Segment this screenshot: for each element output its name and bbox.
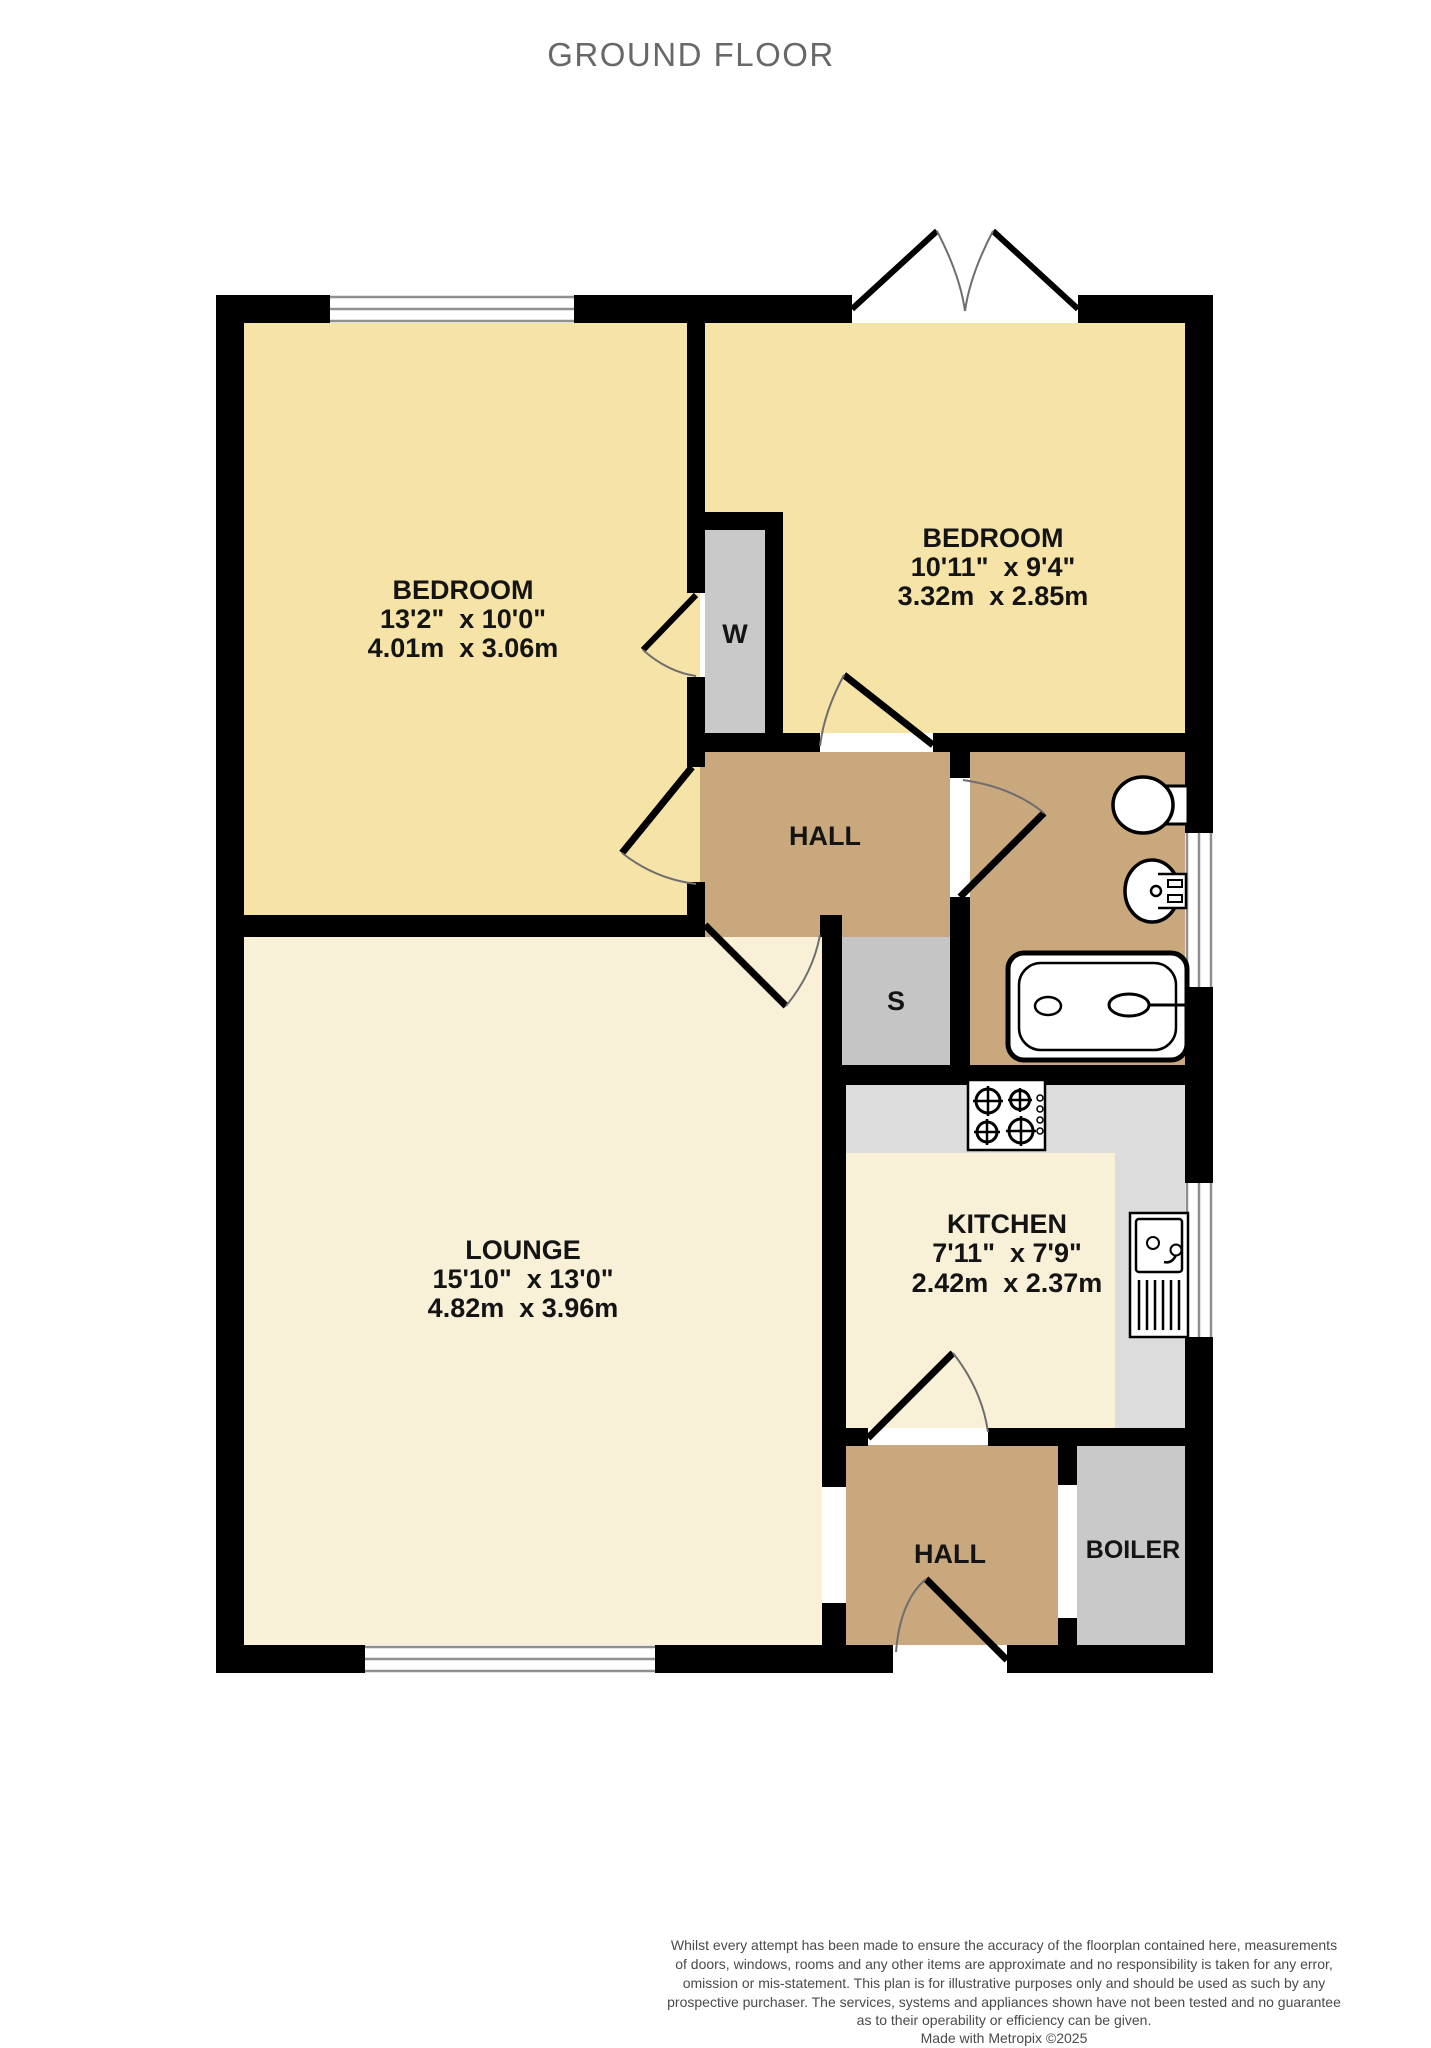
kitchen-name: KITCHEN [947,1209,1067,1239]
french-doors [852,231,1078,311]
page-title: GROUND FLOOR [547,36,835,73]
wall-segment [846,1428,868,1446]
wall-segment [1058,1428,1077,1485]
metropix-credit: Made with Metropix ©2025 [921,2030,1088,2046]
wall-segment [822,1603,846,1645]
floorplan-canvas: GROUND FLOOR BEDROOM 13'2" x 10'0" 4.01m… [0,0,1431,2048]
disclaimer: Whilst every attempt has been made to en… [667,1937,1341,2046]
bath-fixture [1008,953,1187,1060]
wall-segment [933,733,1185,752]
hall-lower-label: HALL [914,1539,986,1569]
store-label: S [887,986,905,1016]
wall-segment [687,882,705,915]
wall-segment [822,915,842,1085]
wall-segment [1058,1618,1077,1645]
lounge-imperial: 15'10" x 13'0" [432,1264,613,1294]
wall-segment [687,530,705,593]
wall-segment [216,1645,365,1673]
wall-segment [822,1085,846,1487]
kitchen-imperial: 7'11" x 7'9" [932,1238,1082,1268]
wall-segment [655,1645,893,1673]
wall-segment [1185,295,1213,833]
wall-segment [783,733,820,752]
disclaimer-line: Whilst every attempt has been made to en… [671,1937,1337,1953]
bedroom1-metric: 4.01m x 3.06m [368,633,559,663]
window-lounge [365,1645,655,1673]
wall-segment [1185,1337,1213,1673]
wall-segment [950,897,970,1065]
disclaimer-line: prospective purchaser. The services, sys… [667,1994,1341,2010]
toilet-fixture [1113,777,1188,833]
window-bedroom1 [330,295,574,323]
bedroom2-metric: 3.32m x 2.85m [898,581,1089,611]
wall-segment [950,752,970,778]
lounge-metric: 4.82m x 3.96m [428,1293,619,1323]
wall-segment [687,323,705,512]
wall-segment [244,915,705,937]
hob-fixture [968,1080,1045,1150]
wall-segment [687,733,783,752]
wardrobe-label: W [722,619,748,649]
window-bathroom [1185,833,1213,987]
wall-segment [765,512,783,752]
bedroom2-imperial: 10'11" x 9'4" [911,552,1076,582]
disclaimer-line: omission or mis-statement. This plan is … [683,1975,1326,1991]
disclaimer-line: as to their operability or efficiency ca… [857,2012,1152,2028]
lounge-name: LOUNGE [465,1235,581,1265]
disclaimer-line: of doors, windows, rooms and any other i… [675,1956,1333,1972]
bedroom1-name: BEDROOM [393,575,534,605]
wall-segment [1007,1645,1212,1673]
hall-upper-label: HALL [789,821,861,851]
kitchen-metric: 2.42m x 2.37m [912,1268,1103,1298]
wall-segment [216,295,244,1673]
wall-segment [574,295,852,323]
wall-segment [988,1428,1188,1446]
bedroom2-name: BEDROOM [923,523,1064,553]
bedroom1-imperial: 13'2" x 10'0" [380,604,546,634]
wall-segment [687,677,705,767]
floorplan-page: GROUND FLOOR BEDROOM 13'2" x 10'0" 4.01m… [0,0,1431,2048]
kitchen-sink-fixture [1130,1213,1188,1337]
boiler-label: BOILER [1086,1536,1180,1564]
